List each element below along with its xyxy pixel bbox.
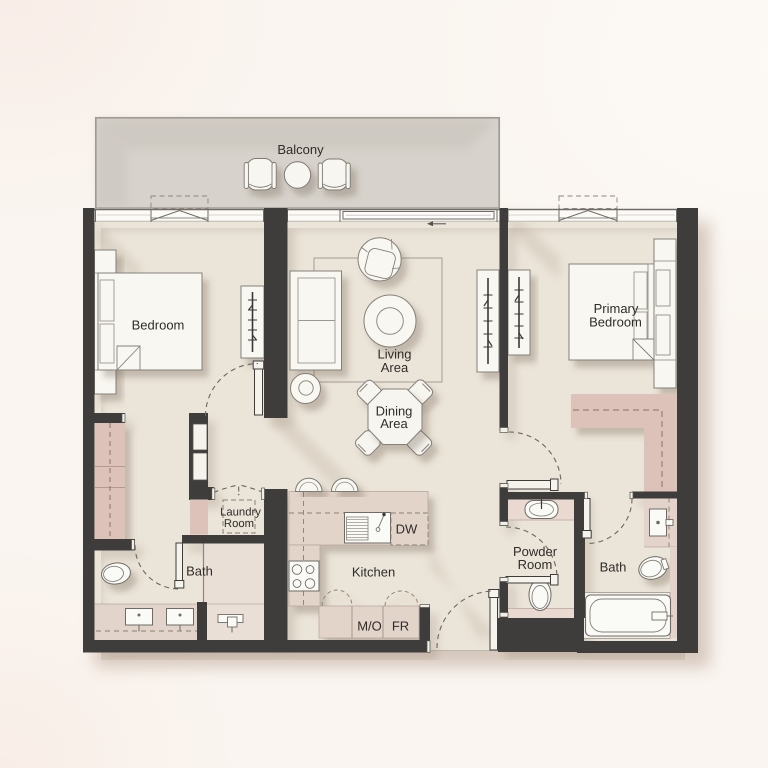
svg-text:Bedroom: Bedroom (132, 318, 185, 333)
svg-text:Bedroom: Bedroom (589, 314, 642, 329)
svg-text:Room: Room (224, 518, 254, 530)
svg-text:Bath: Bath (186, 564, 213, 579)
svg-text:DW: DW (396, 521, 418, 536)
svg-text:Balcony: Balcony (277, 142, 324, 157)
svg-text:Room: Room (518, 557, 553, 572)
svg-text:Bath: Bath (600, 560, 627, 575)
svg-text:Laundry: Laundry (220, 507, 261, 519)
svg-text:Area: Area (380, 416, 408, 431)
svg-text:Kitchen: Kitchen (352, 565, 395, 580)
svg-text:FR: FR (392, 618, 409, 633)
svg-text:Area: Area (381, 360, 409, 375)
svg-text:M/O: M/O (357, 618, 382, 633)
